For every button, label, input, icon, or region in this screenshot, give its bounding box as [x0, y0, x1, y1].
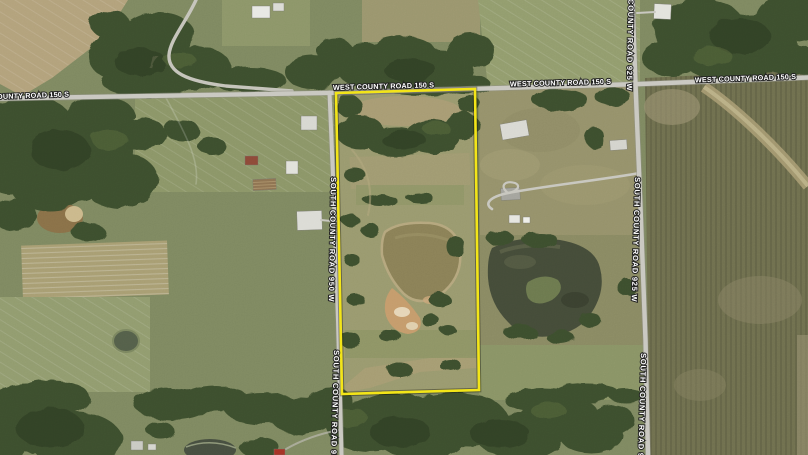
- photo-grain: [0, 0, 808, 455]
- aerial-map-svg: WEST COUNTY ROAD 150 S WEST COUNTY ROAD …: [0, 0, 808, 455]
- road-label-925w-top: SOUTH COUNTY ROAD 925 W: [625, 0, 636, 91]
- aerial-map-canvas[interactable]: WEST COUNTY ROAD 150 S WEST COUNTY ROAD …: [0, 0, 808, 455]
